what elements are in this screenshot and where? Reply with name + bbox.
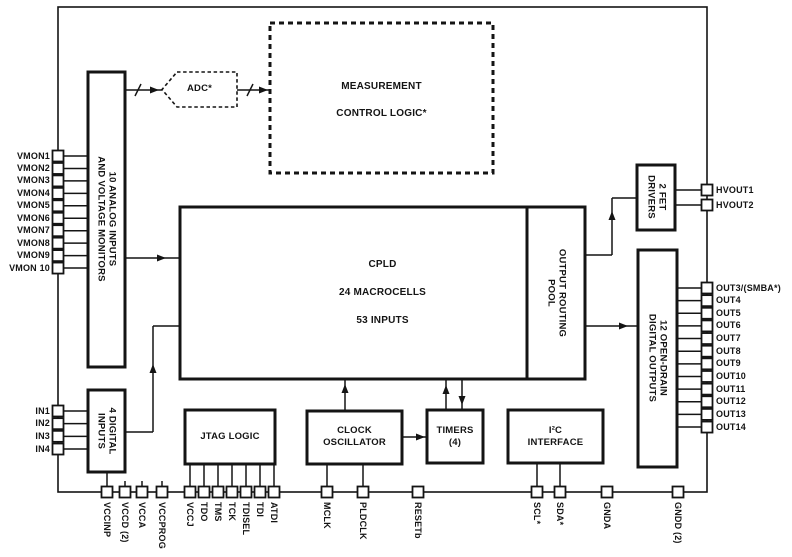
pin-VMON2: [53, 163, 64, 174]
pin-GNDA: [602, 487, 613, 498]
pin-label: OUT5: [716, 308, 741, 319]
pin-OUT12: [702, 396, 713, 407]
pin-label: RESETb: [412, 502, 423, 539]
pin-label: VCCINP: [101, 502, 112, 537]
pin-label: VMON2: [0, 163, 50, 174]
block-diagram: 10 ANALOG INPUTS AND VOLTAGE MONITORS 4 …: [0, 0, 792, 557]
pin-IN1: [53, 406, 64, 417]
pin-VMON3: [53, 175, 64, 186]
pin-label: VMON9: [0, 250, 50, 261]
pin-label: TCK: [226, 502, 237, 521]
fet-drivers-label: 2 FET DRIVERS: [646, 175, 667, 219]
pin-label: IN1: [0, 406, 50, 417]
pin-OUT6: [702, 320, 713, 331]
pin-OUT7: [702, 333, 713, 344]
pin-label: OUT13: [716, 409, 746, 420]
pin-ATDI: [269, 487, 280, 498]
digital-inputs-label: 4 DIGITAL INPUTS: [96, 407, 117, 454]
pin-label: VMON4: [0, 188, 50, 199]
pin-VCCINP: [102, 487, 113, 498]
pin-label: IN2: [0, 418, 50, 429]
pin-label: VMON7: [0, 225, 50, 236]
pin-label: VMON 10: [0, 263, 50, 274]
pin-label: VMON6: [0, 213, 50, 224]
pin-VMON4: [53, 188, 64, 199]
pin-label: VMON3: [0, 175, 50, 186]
pin-label: OUT12: [716, 396, 746, 407]
pin-label: OUT4: [716, 295, 741, 306]
pin-VCCD (2): [120, 487, 131, 498]
pin-TMS: [213, 487, 224, 498]
pin-OUT4: [702, 295, 713, 306]
pin-TCK: [227, 487, 238, 498]
pin-VMON8: [53, 238, 64, 249]
pin-label: OUT9: [716, 358, 741, 369]
timers-label: TIMERS (4): [427, 425, 483, 449]
pin-IN2: [53, 418, 64, 429]
pin-MCLK: [322, 487, 333, 498]
pin-HVOUT1: [702, 185, 713, 196]
pin-label: ATDI: [268, 502, 279, 523]
clock-oscillator-label: CLOCK OSCILLATOR: [307, 425, 402, 449]
pin-label: GNDD (2): [672, 502, 683, 544]
pin-GNDD (2): [673, 487, 684, 498]
pin-RESETb: [413, 487, 424, 498]
pin-label: GNDA: [601, 502, 612, 529]
pin-VMON1: [53, 151, 64, 162]
cpld-label: CPLD 24 MACROCELLS 53 INPUTS: [180, 251, 585, 335]
pin-SDA*: [555, 487, 566, 498]
pin-label: IN3: [0, 431, 50, 442]
pin-label: IN4: [0, 444, 50, 455]
pin-VMON6: [53, 213, 64, 224]
pin-TDI: [255, 487, 266, 498]
pin-VCCPROG: [157, 487, 168, 498]
pin-label: VCCJ: [184, 502, 195, 527]
pin-label: PLDCLK: [357, 502, 368, 540]
pin-VMON 10: [53, 263, 64, 274]
i2c-label: I²C INTERFACE: [508, 425, 603, 449]
pin-label: OUT10: [716, 371, 746, 382]
pin-VMON5: [53, 200, 64, 211]
pin-VMON9: [53, 250, 64, 261]
pin-label: OUT3/(SMBA*): [716, 283, 781, 294]
output-routing-pool-label: OUTPUT ROUTING POOL: [546, 249, 567, 337]
pin-label: OUT6: [716, 320, 741, 331]
pin-VMON7: [53, 225, 64, 236]
pin-label: VCCA: [136, 502, 147, 528]
adc-label: ADC*: [162, 83, 237, 94]
pin-label: TDISEL: [240, 502, 251, 535]
pin-HVOUT2: [702, 200, 713, 211]
pin-IN4: [53, 444, 64, 455]
pin-TDISEL: [241, 487, 252, 498]
pin-OUT11: [702, 384, 713, 395]
measurement-control-label: MEASUREMENT CONTROL LOGIC*: [270, 73, 493, 127]
pin-label: SDA*: [554, 502, 565, 525]
pin-VCCA: [137, 487, 148, 498]
pin-OUT9: [702, 358, 713, 369]
pin-label: TDI: [254, 502, 265, 517]
pin-IN3: [53, 431, 64, 442]
pin-label: VCCD (2): [119, 502, 130, 543]
pin-PLDCLK: [358, 487, 369, 498]
pin-OUT3/(SMBA*): [702, 283, 713, 294]
pin-label: VMON5: [0, 200, 50, 211]
pin-OUT10: [702, 371, 713, 382]
pin-OUT13: [702, 409, 713, 420]
pin-TDO: [199, 487, 210, 498]
pin-label: OUT11: [716, 384, 746, 395]
pin-label: HVOUT2: [716, 200, 754, 211]
pin-label: TMS: [212, 502, 223, 522]
pin-OUT5: [702, 308, 713, 319]
pin-label: OUT7: [716, 333, 741, 344]
pin-label: VMON1: [0, 151, 50, 162]
analog-monitors-label: 10 ANALOG INPUTS AND VOLTAGE MONITORS: [96, 156, 117, 281]
pin-SCL*: [532, 487, 543, 498]
pin-label: MCLK: [321, 502, 332, 529]
pin-label: TDO: [198, 502, 209, 522]
pin-label: VCCPROG: [156, 502, 167, 549]
pin-label: OUT14: [716, 422, 746, 433]
pin-VCCJ: [185, 487, 196, 498]
pin-label: VMON8: [0, 238, 50, 249]
pin-label: HVOUT1: [716, 185, 754, 196]
pin-OUT8: [702, 346, 713, 357]
pin-OUT14: [702, 422, 713, 433]
jtag-label: JTAG LOGIC: [185, 431, 275, 442]
open-drain-outputs-label: 12 OPEN-DRAIN DIGITAL OUTPUTS: [647, 314, 668, 402]
pin-label: SCL*: [531, 502, 542, 524]
pin-label: OUT8: [716, 346, 741, 357]
